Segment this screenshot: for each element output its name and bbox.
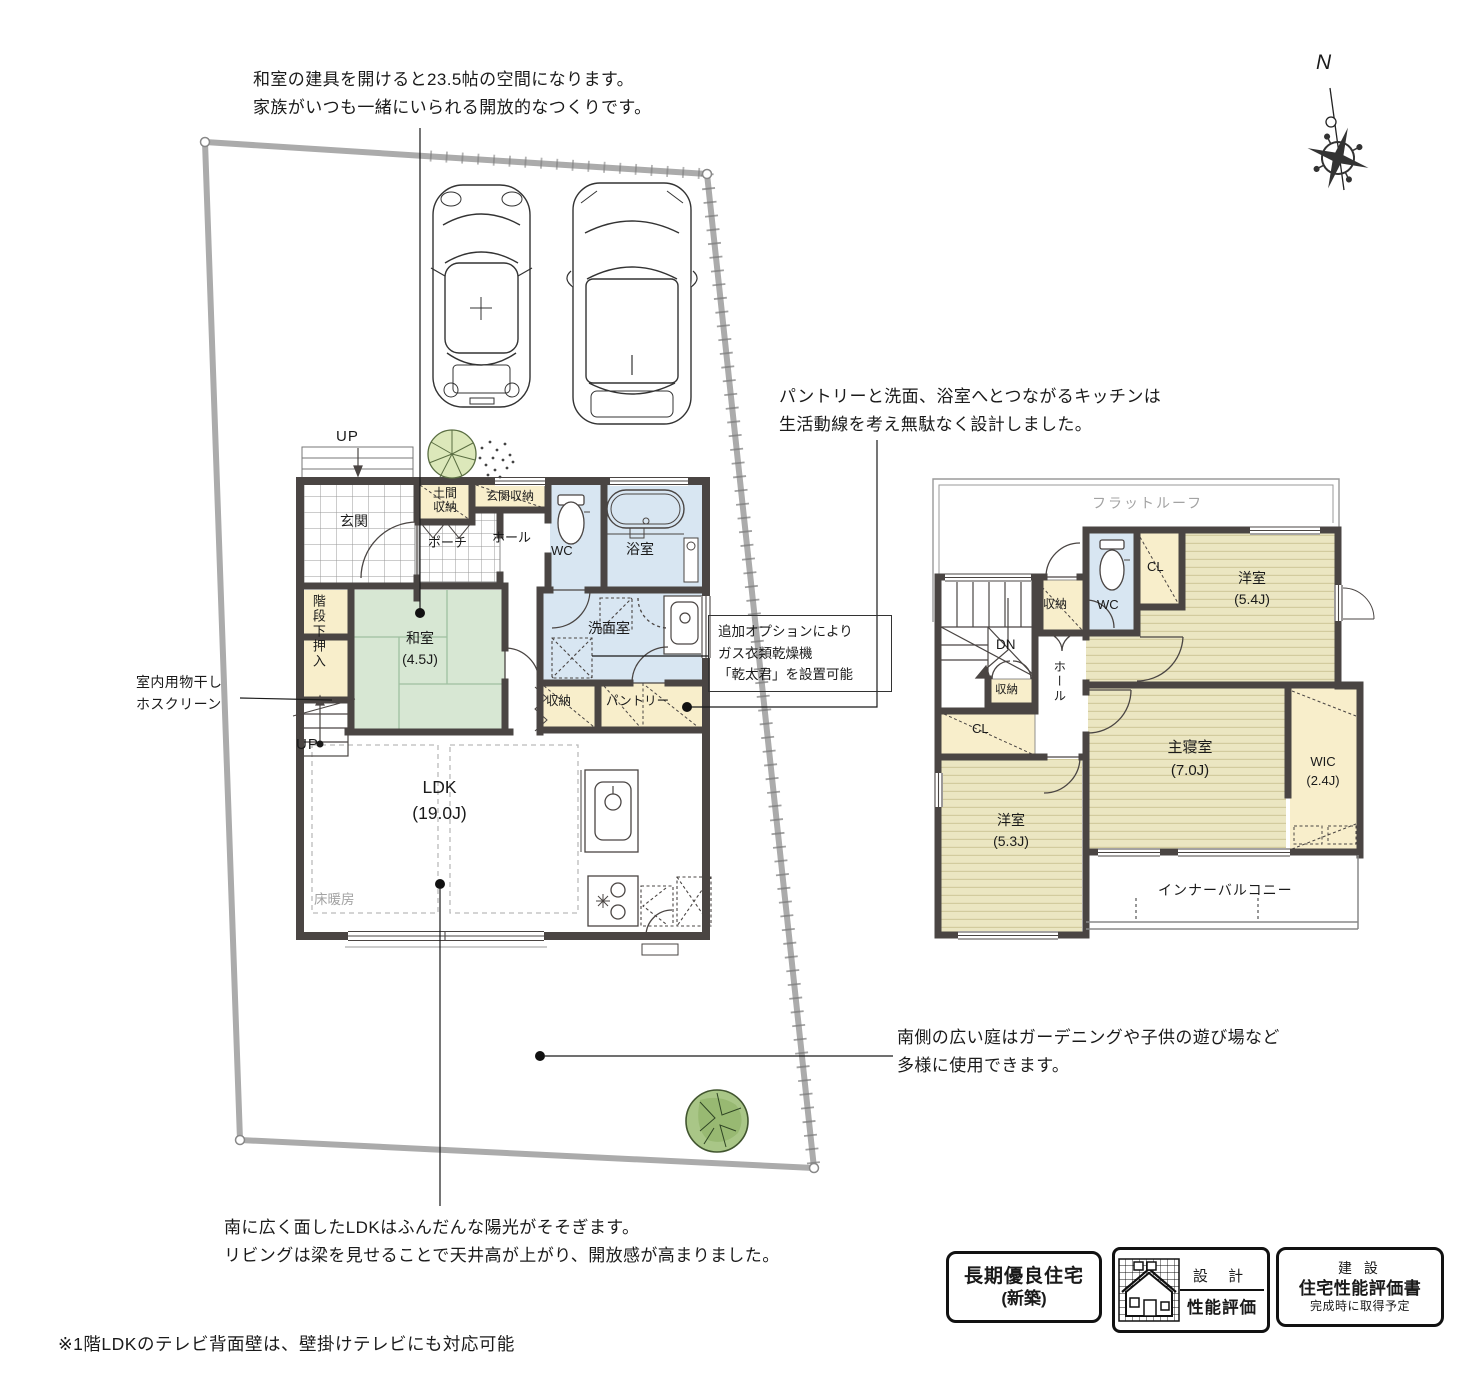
garden-note: 南側の広い庭はガーデニングや子供の遊び場など 多様に使用できます。 bbox=[897, 1024, 1280, 1079]
label-genkan-shuunou: 玄関収納 bbox=[475, 489, 545, 504]
floor-heating bbox=[312, 745, 578, 913]
label-shuunou-1f: 収納 bbox=[546, 694, 571, 709]
badge-kensetsu-line3: 完成時に取得予定 bbox=[1279, 1299, 1441, 1314]
label-wic: WIC (2.4J) bbox=[1293, 753, 1353, 791]
label-shuunou-2fb: 収納 bbox=[995, 683, 1018, 697]
label-pantry: パントリー bbox=[606, 694, 669, 709]
kitchen-appliance-spaces bbox=[641, 877, 711, 926]
compass-icon bbox=[1298, 88, 1379, 198]
kitchen-note: パントリーと洗面、浴室へとつながるキッチンは 生活動線を考え無駄なく設計しました… bbox=[779, 383, 1161, 438]
compass-north-label: N bbox=[1316, 50, 1331, 76]
floor2-fills bbox=[941, 530, 1359, 932]
badge-kensetsu-line2: 住宅性能評価書 bbox=[1279, 1278, 1441, 1299]
label-senmenshitsu: 洗面室 bbox=[588, 620, 630, 637]
label-wc-2f: WC bbox=[1097, 597, 1119, 613]
label-hall-1f: ホール bbox=[492, 530, 531, 546]
label-doma-shuunou: 土間 収納 bbox=[421, 486, 469, 515]
badge-sekkei-bottom: 性能評価 bbox=[1180, 1291, 1264, 1318]
label-bath: 浴室 bbox=[626, 541, 654, 558]
small-tree bbox=[428, 430, 476, 478]
label-porch: ポーチ bbox=[428, 535, 467, 551]
car-2 bbox=[567, 183, 697, 424]
badge-sekkei-hyouka: 設 計 性能評価 bbox=[1112, 1247, 1270, 1333]
label-wc-1f: WC bbox=[551, 543, 573, 559]
label-kaidanshita-oshiire: 階段下押入 bbox=[310, 594, 326, 704]
label-genkan: 玄関 bbox=[340, 513, 368, 530]
label-shushinshitsu: 主寝室 (7.0J) bbox=[1147, 737, 1233, 782]
top-note: 和室の建具を開けると23.5帖の空間になります。 家族がいつも一緒にいられる開放… bbox=[253, 66, 652, 121]
label-ldk: LDK (19.0J) bbox=[392, 774, 487, 827]
ldk-note: 南に広く面したLDKはふんだんな陽光がそそぎます。 リビングは梁を見せることで天… bbox=[224, 1214, 780, 1269]
badge-kensetsu-hyoukasho: 建 設 住宅性能評価書 完成時に取得予定 bbox=[1276, 1247, 1444, 1327]
footnote: ※1階LDKのテレビ背面壁は、壁掛けテレビにも対応可能 bbox=[58, 1331, 515, 1356]
badge-sekkei-top: 設 計 bbox=[1180, 1263, 1264, 1291]
garden-tree bbox=[686, 1090, 748, 1152]
label-shuunou-2fa: 収納 bbox=[1043, 597, 1067, 612]
label-hall-2f: ホール bbox=[1050, 660, 1065, 720]
floorplan-page: 和室の建具を開けると23.5帖の空間になります。 家族がいつも一緒にいられる開放… bbox=[0, 0, 1480, 1380]
badge-choki-line2: (新築) bbox=[949, 1288, 1099, 1309]
label-yukadanbou: 床暖房 bbox=[314, 892, 355, 908]
label-flat-roof: フラットルーフ bbox=[1092, 495, 1203, 512]
kitchen-counter bbox=[581, 770, 638, 926]
badge-choki-line1: 長期優良住宅 bbox=[949, 1265, 1099, 1289]
hoscreen-note: 室内用物干し ホスクリーン bbox=[136, 672, 222, 715]
badge-choki-yuryo: 長期優良住宅 (新築) bbox=[946, 1251, 1102, 1323]
badge-kensetsu-line1: 建 設 bbox=[1279, 1260, 1441, 1278]
label-up-north: UP bbox=[336, 428, 359, 446]
label-cl-b: CL bbox=[972, 721, 989, 737]
sekkei-house-icon bbox=[1118, 1258, 1180, 1322]
label-inner-balcony: インナーバルコニー bbox=[1158, 882, 1293, 899]
label-yoshitsu-54: 洋室 (5.4J) bbox=[1212, 568, 1292, 610]
car-1 bbox=[431, 185, 532, 407]
label-up-stairs: UP bbox=[296, 736, 319, 754]
washbasin bbox=[664, 596, 704, 654]
label-cl-a: CL bbox=[1147, 559, 1164, 575]
label-dn: DN bbox=[996, 637, 1016, 653]
label-washitsu: 和室 (4.5J) bbox=[382, 628, 458, 670]
shrub-dots bbox=[479, 441, 515, 479]
label-yoshitsu-53: 洋室 (5.3J) bbox=[971, 810, 1051, 852]
option-note-box: 追加オプションにより ガス衣類乾燥機 「乾太君」を設置可能 bbox=[708, 615, 892, 692]
